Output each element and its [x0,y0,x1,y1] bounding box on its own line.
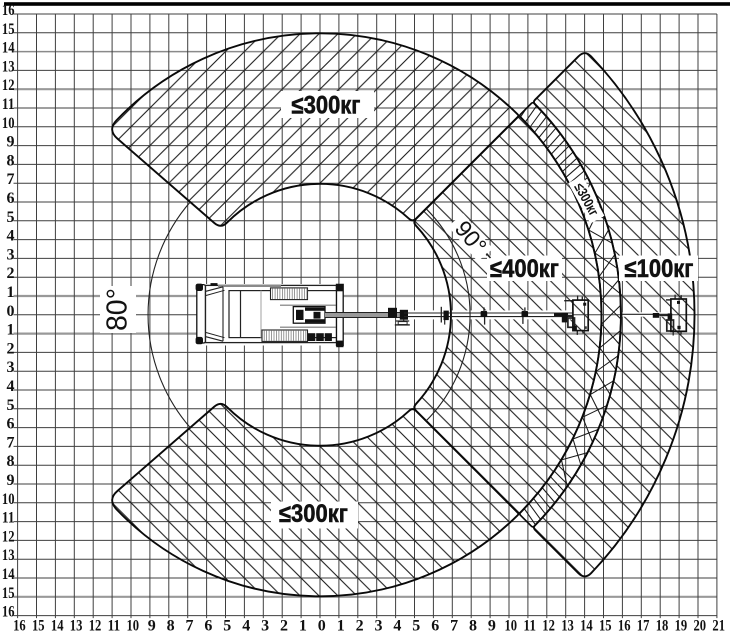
svg-text:4: 4 [7,228,15,245]
svg-text:0: 0 [7,303,15,320]
svg-text:2: 2 [280,618,288,635]
svg-text:10: 10 [2,491,15,508]
svg-text:6: 6 [204,618,212,635]
svg-text:7: 7 [186,618,194,635]
svg-text:8: 8 [7,152,15,169]
svg-text:15: 15 [2,585,15,602]
svg-text:7: 7 [7,434,15,451]
svg-text:3: 3 [375,618,383,635]
svg-text:10: 10 [505,618,518,635]
svg-text:0: 0 [318,618,326,635]
svg-text:11: 11 [108,618,121,635]
svg-text:11: 11 [2,96,15,113]
svg-text:9: 9 [7,472,15,489]
svg-text:9: 9 [148,618,156,635]
svg-text:5: 5 [223,618,231,635]
svg-text:2: 2 [356,618,364,635]
svg-text:7: 7 [450,618,458,635]
svg-text:1: 1 [7,284,15,301]
svg-text:16: 16 [13,618,26,635]
svg-text:21: 21 [712,618,725,635]
svg-text:16: 16 [2,2,15,19]
svg-text:2: 2 [7,265,15,282]
svg-text:5: 5 [7,397,15,414]
svg-text:1: 1 [299,618,307,635]
svg-text:19: 19 [675,618,688,635]
svg-text:15: 15 [32,618,45,635]
svg-text:12: 12 [2,528,15,545]
svg-text:12: 12 [2,77,15,94]
svg-text:8: 8 [167,618,175,635]
svg-text:6: 6 [431,618,439,635]
svg-text:14: 14 [580,618,593,635]
svg-text:8: 8 [469,618,477,635]
svg-text:13: 13 [2,58,15,75]
svg-text:10: 10 [127,618,140,635]
svg-text:13: 13 [2,547,15,564]
svg-text:14: 14 [51,618,64,635]
svg-text:4: 4 [393,618,401,635]
svg-text:3: 3 [261,618,269,635]
svg-text:6: 6 [7,190,15,207]
svg-text:14: 14 [2,566,15,583]
svg-text:20: 20 [694,618,707,635]
svg-text:≤400кг: ≤400кг [490,255,559,283]
svg-text:15: 15 [2,21,15,38]
svg-text:13: 13 [70,618,83,635]
svg-text:17: 17 [637,618,650,635]
svg-text:≤300кг: ≤300кг [279,500,348,528]
svg-text:14: 14 [2,40,15,57]
svg-text:8: 8 [7,453,15,470]
svg-text:11: 11 [2,510,15,527]
svg-text:16: 16 [618,618,631,635]
svg-text:1: 1 [337,618,345,635]
svg-text:≤300кг: ≤300кг [292,91,361,119]
svg-text:80°: 80° [102,288,134,331]
svg-text:4: 4 [242,618,250,635]
svg-text:18: 18 [656,618,669,635]
svg-text:5: 5 [7,209,15,226]
svg-text:≤100кг: ≤100кг [625,255,694,283]
svg-text:9: 9 [488,618,496,635]
svg-text:11: 11 [523,618,536,635]
svg-text:3: 3 [7,359,15,376]
svg-text:1: 1 [7,322,15,339]
svg-text:12: 12 [542,618,555,635]
svg-text:5: 5 [412,618,420,635]
svg-text:10: 10 [2,115,15,132]
svg-text:7: 7 [7,171,15,188]
svg-text:4: 4 [7,378,15,395]
svg-text:2: 2 [7,340,15,357]
svg-text:3: 3 [7,246,15,263]
svg-text:13: 13 [561,618,574,635]
svg-text:9: 9 [7,134,15,151]
svg-text:6: 6 [7,416,15,433]
svg-text:15: 15 [599,618,612,635]
svg-text:12: 12 [89,618,102,635]
